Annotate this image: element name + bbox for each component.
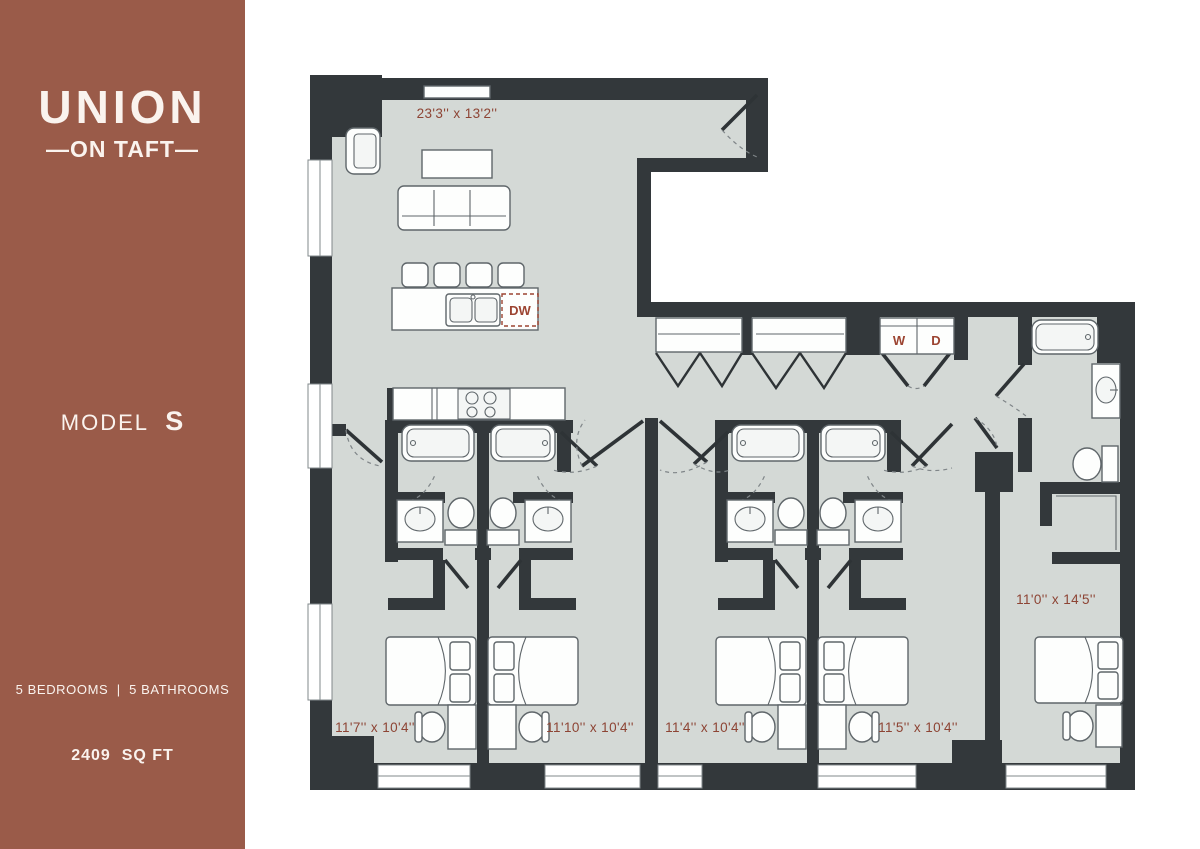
- bedroom-5-dimensions: 11'0'' x 14'5'': [1016, 592, 1096, 607]
- window: [545, 765, 640, 788]
- logo-secondary: —ON TAFT—: [0, 136, 245, 163]
- bar-stool: [402, 263, 428, 287]
- dryer-label: D: [931, 333, 940, 348]
- sink-5: [1092, 364, 1120, 418]
- desk-chair-5: [1063, 711, 1093, 741]
- bathtub-4: [821, 425, 885, 461]
- toilet-1: [445, 498, 477, 545]
- hall-closets: W D: [656, 318, 954, 354]
- window: [308, 160, 332, 256]
- armchair: [346, 128, 380, 174]
- bathtub-1: [402, 425, 474, 461]
- desk-2: [488, 705, 516, 749]
- bed-2: [488, 637, 578, 705]
- bedroom-3-dimensions: 11'4'' x 10'4'': [665, 720, 745, 735]
- desk-chair-1: [415, 712, 445, 742]
- coffee-table: [422, 150, 492, 178]
- toilet-3: [775, 498, 807, 545]
- bathtub-2: [491, 425, 555, 461]
- brand-sidebar: UNION —ON TAFT— MODEL S 5 BEDROOMS | 5 B…: [0, 0, 245, 849]
- sink-1: [397, 500, 443, 542]
- bedroom-2-dimensions: 11'10'' x 10'4'': [546, 720, 634, 735]
- island-sink: [446, 294, 500, 326]
- square-footage: 2409 SQ FT: [0, 747, 245, 765]
- floor-plan-page: UNION —ON TAFT— MODEL S 5 BEDROOMS | 5 B…: [0, 0, 1200, 849]
- model-label: MODEL: [61, 410, 149, 435]
- window: [308, 604, 332, 700]
- desk-5: [1096, 705, 1122, 747]
- toilet-4: [817, 498, 849, 545]
- desk-1: [448, 705, 476, 749]
- floor-plan-drawing: DW: [245, 0, 1200, 849]
- washer-dryer: W D: [880, 318, 954, 354]
- model-value: S: [165, 406, 184, 436]
- living-dimensions: 23'3'' x 13'2'': [417, 106, 498, 121]
- closet: [752, 318, 846, 352]
- bar-stool: [434, 263, 460, 287]
- bed-1: [386, 637, 476, 705]
- bar-stool: [466, 263, 492, 287]
- window: [658, 765, 702, 788]
- desk-3: [778, 705, 806, 749]
- bathtub-3: [732, 425, 804, 461]
- washer-label: W: [893, 333, 906, 348]
- bedroom-4-dimensions: 11'5'' x 10'4'': [878, 720, 958, 735]
- bed-4: [818, 637, 908, 705]
- kitchen-counter: [393, 388, 565, 420]
- desk-chair-3: [745, 712, 775, 742]
- dishwasher-label: DW: [509, 303, 531, 318]
- bed-5: [1035, 637, 1123, 703]
- bed-bath-stats: 5 BEDROOMS | 5 BATHROOMS: [0, 682, 245, 697]
- bed-3: [716, 637, 806, 705]
- toilet-5: [1073, 446, 1118, 482]
- sink-2: [525, 500, 571, 542]
- desk-chair-4: [849, 712, 879, 742]
- window: [308, 384, 332, 468]
- window: [1006, 765, 1106, 788]
- sink-3: [727, 500, 773, 542]
- model-line: MODEL S: [0, 406, 245, 437]
- range: [458, 389, 510, 419]
- window: [378, 765, 470, 788]
- window: [818, 765, 916, 788]
- closet: [656, 318, 742, 352]
- desk-chair-2: [519, 712, 549, 742]
- desk-4: [818, 705, 846, 749]
- tv-console: [424, 86, 490, 98]
- sofa: [398, 186, 510, 230]
- logo: UNION —ON TAFT—: [0, 84, 245, 163]
- sink-4: [855, 500, 901, 542]
- bar-stool: [498, 263, 524, 287]
- toilet-2: [487, 498, 519, 545]
- bathtub-5: [1032, 320, 1098, 354]
- logo-primary: UNION: [0, 84, 245, 130]
- bedroom-1-dimensions: 11'7'' x 10'4'': [335, 720, 415, 735]
